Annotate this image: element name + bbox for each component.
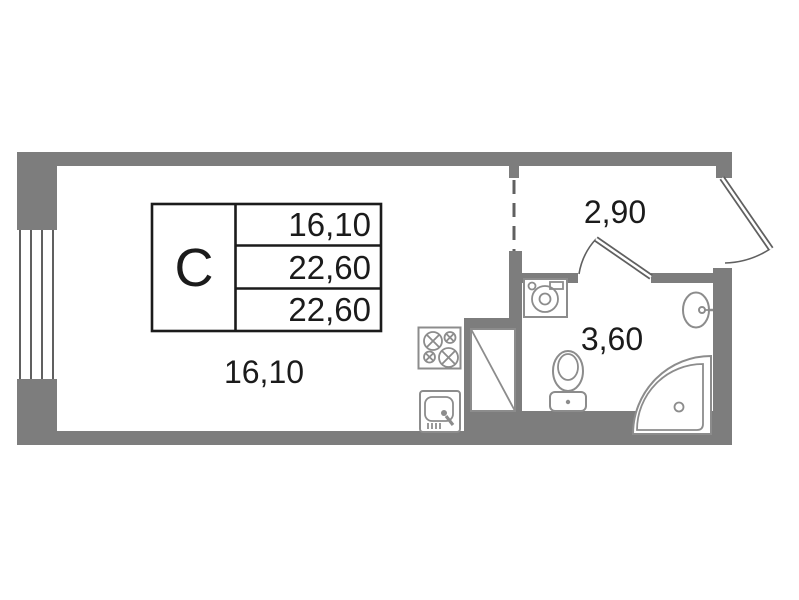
window — [20, 230, 53, 379]
stove-icon — [419, 328, 461, 369]
ventilation-shaft — [471, 329, 515, 411]
floor-plan-svg: С 16,10 22,60 22,60 16,10 2,90 3,60 — [0, 0, 799, 600]
living-room-area-label: 16,10 — [224, 354, 304, 390]
wall-top — [17, 152, 732, 166]
bathroom-area-label: 3,60 — [581, 321, 643, 357]
spec-value-3: 22,60 — [288, 291, 371, 328]
spec-table: С 16,10 22,60 22,60 — [152, 204, 381, 331]
spec-value-1: 16,10 — [288, 206, 371, 243]
toilet-icon — [550, 351, 586, 411]
hallway-area-label: 2,90 — [584, 194, 646, 230]
sink-tap — [441, 410, 447, 416]
kitchen-sink-icon — [420, 391, 460, 432]
floor-plan: С 16,10 22,60 22,60 16,10 2,90 3,60 — [0, 0, 799, 600]
wall-right — [713, 268, 732, 445]
door-swing-arc — [579, 239, 596, 274]
wall-bathroom-top-right — [651, 273, 713, 283]
door-leaf — [722, 178, 771, 249]
wall-corner-top-right — [716, 152, 732, 178]
shower-cabin-icon — [633, 356, 711, 434]
wall-left-upper — [17, 152, 57, 230]
washing-machine-icon — [524, 279, 567, 317]
door-swing-arc — [725, 249, 770, 263]
wall-stub-top — [509, 166, 519, 178]
spec-value-2: 22,60 — [288, 249, 371, 286]
wash-basin-icon — [683, 293, 713, 328]
unit-type-label: С — [175, 238, 214, 298]
entrance-door — [722, 178, 771, 263]
toilet-bowl — [553, 351, 583, 391]
door-leaf — [596, 239, 651, 277]
interior-door — [579, 239, 651, 277]
shower-tray — [633, 356, 711, 434]
